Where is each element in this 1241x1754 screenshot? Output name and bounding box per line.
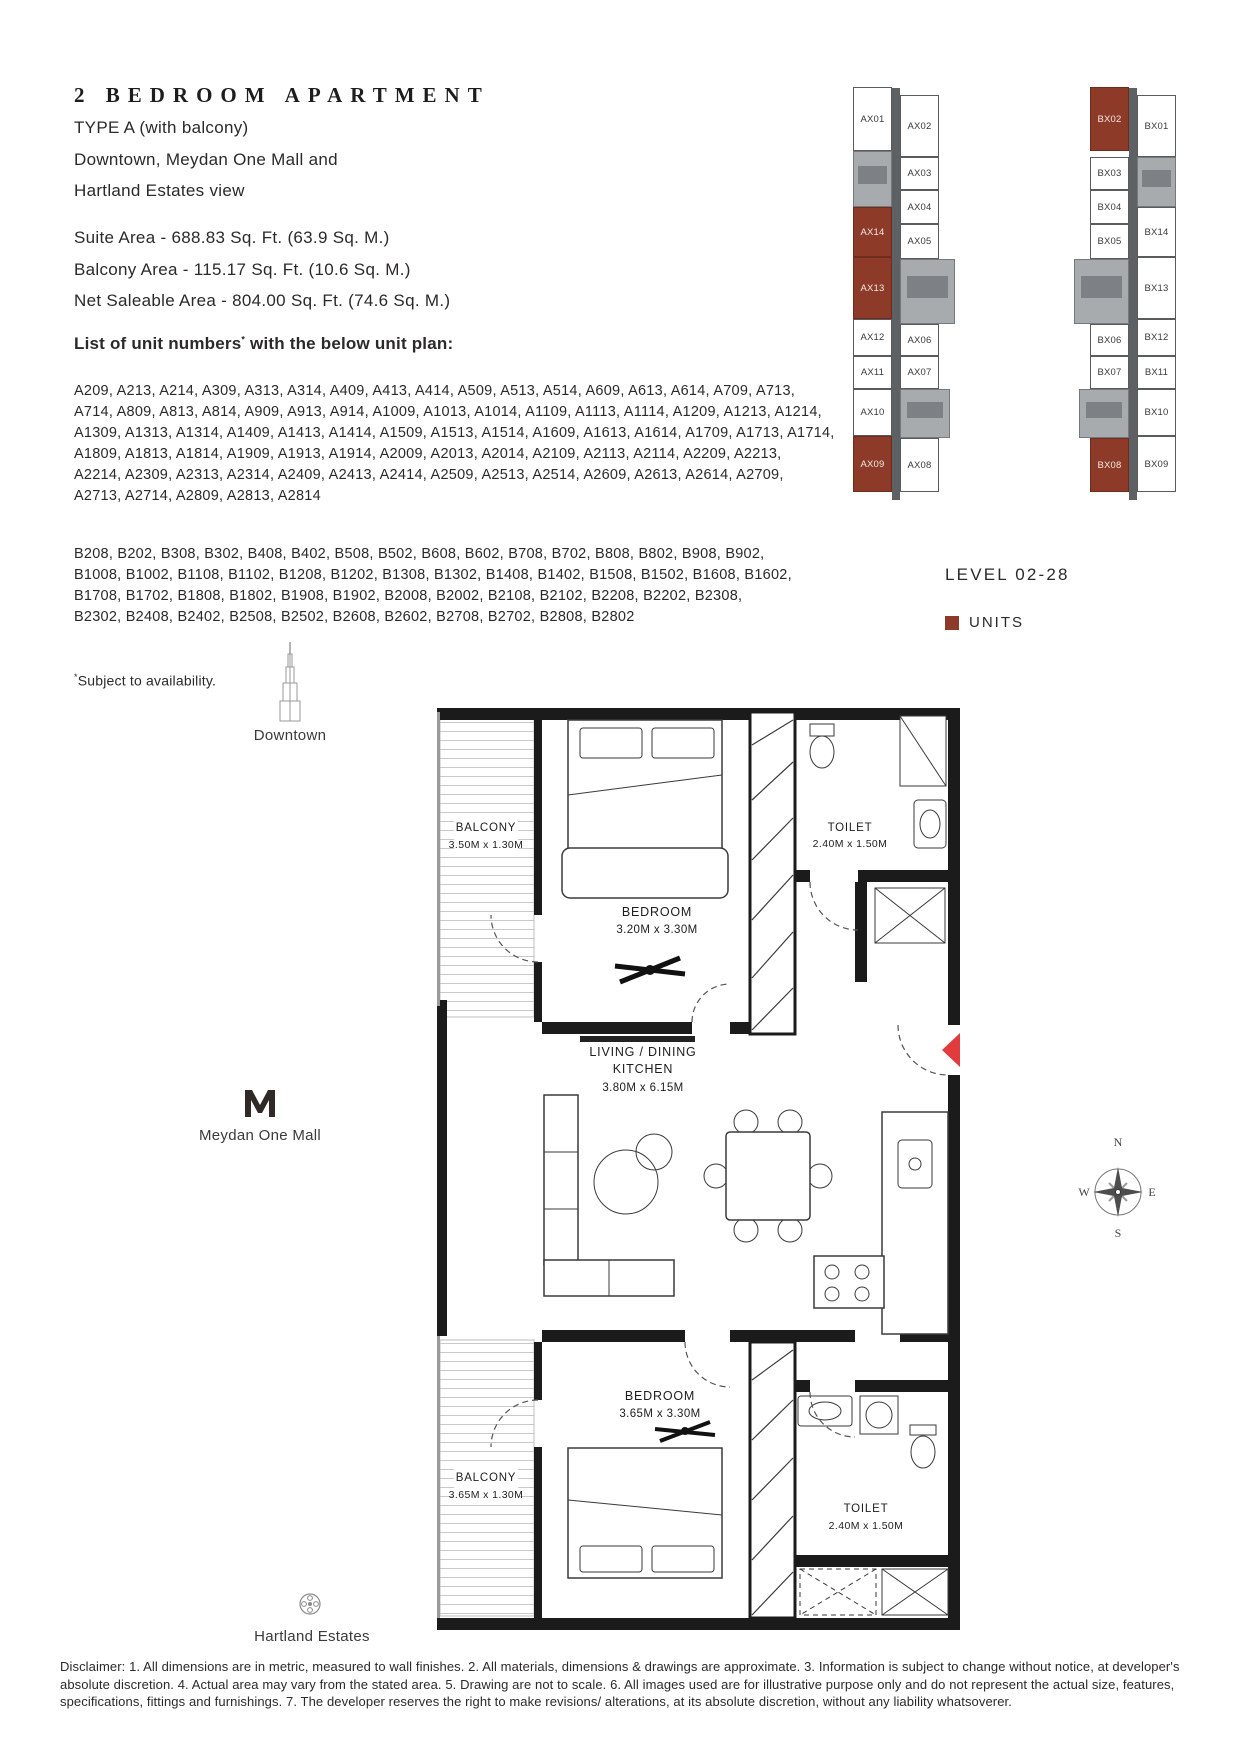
net-area: Net Saleable Area - 804.00 Sq. Ft. (74.6… <box>74 285 450 317</box>
keyplan-unit: BX14 <box>1137 207 1176 257</box>
core-detail <box>907 402 944 418</box>
unit-color-swatch <box>945 616 959 630</box>
room-label-toilet-bottom: TOILET <box>844 1503 889 1515</box>
availability-note-text: Subject to availability. <box>78 673 216 689</box>
room-label-toilet-top: TOILET <box>828 822 873 834</box>
keyplan-unit: BX06 <box>1090 324 1129 356</box>
unit-list-a-line: A1809, A1813, A1814, A1909, A1913, A1914… <box>74 444 835 465</box>
compass-n: N <box>1114 1135 1123 1149</box>
balcony-top-floor <box>440 713 534 1017</box>
unit-list-heading-text: List of unit numbers <box>74 334 241 353</box>
meydan-one-mall-logo <box>242 1086 278 1120</box>
utility-box-dashed <box>800 1569 876 1615</box>
keyplan-unit: AX06 <box>900 324 939 356</box>
page-title: 2 BEDROOM APARTMENT <box>74 83 490 108</box>
unit-list-b-line: B1008, B1002, B1108, B1102, B1208, B1202… <box>74 565 792 586</box>
keyplan-unit: BX10 <box>1137 389 1176 436</box>
core-detail <box>1086 402 1123 418</box>
room-label-bedroom-bottom: BEDROOM <box>625 1389 695 1403</box>
room-dims-toilet-top: 2.40M x 1.50M <box>813 838 888 850</box>
keyplan-unit: BX09 <box>1137 436 1176 492</box>
unit-list-a-line: A2214, A2309, A2313, A2314, A2409, A2413… <box>74 465 835 486</box>
keyplan-unit: BX05 <box>1090 224 1129 259</box>
landmark-downtown-label: Downtown <box>230 727 350 744</box>
units-legend-label: UNITS <box>969 614 1024 631</box>
unit-list-heading: List of unit numbers* with the below uni… <box>74 334 453 354</box>
availability-note: *Subject to availability. <box>74 672 216 689</box>
utility-box <box>882 1569 948 1615</box>
keyplan-unit: BX13 <box>1137 257 1176 319</box>
unit-list-a: A209, A213, A214, A309, A313, A314, A409… <box>74 381 835 507</box>
level-label: LEVEL 02-28 <box>945 565 1070 585</box>
keyplan-unit: BX03 <box>1090 157 1129 190</box>
core-detail <box>907 276 947 297</box>
unit-list-a-line: A2713, A2714, A2809, A2813, A2814 <box>74 486 835 507</box>
keyplan-unit-highlight: BX02 <box>1090 87 1129 151</box>
corridor-spine <box>892 88 900 500</box>
unit-list-b-line: B2302, B2408, B2402, B2508, B2502, B2608… <box>74 607 792 628</box>
keyplan-unit: BX01 <box>1137 95 1176 157</box>
keyplan-unit: BX04 <box>1090 190 1129 224</box>
keyplan-unit-highlight: AX09 <box>853 436 892 492</box>
room-dims-balcony-bottom: 3.65M x 1.30M <box>449 1489 524 1501</box>
keyplan-unit-highlight: AX14 <box>853 207 892 257</box>
landmark-hartland-label: Hartland Estates <box>247 1628 377 1645</box>
tv-console-icon <box>580 1036 695 1042</box>
keyplan-core <box>900 389 950 438</box>
units-legend: UNITS <box>945 614 1024 631</box>
room-label-bedroom-top: BEDROOM <box>622 905 692 919</box>
coffee-table-icon <box>594 1134 672 1214</box>
keyplan-unit: AX08 <box>900 438 939 492</box>
keyplan-unit: BX07 <box>1090 356 1129 389</box>
core-detail <box>1081 276 1121 297</box>
corridor-spine <box>1129 88 1137 500</box>
ceiling-fan-icon <box>615 958 685 982</box>
compass-rose-icon: N W E S <box>1072 1132 1164 1242</box>
keyplan-unit: AX03 <box>900 157 939 190</box>
room-label-balcony-bottom: BALCONY <box>456 1472 517 1484</box>
floor-plan: BEDROOM 3.20M x 3.30M BALCONY 3.50M x 1.… <box>430 700 970 1640</box>
hartland-estates-icon <box>296 1590 324 1618</box>
compass-s: S <box>1115 1226 1122 1240</box>
type-line: TYPE A (with balcony) <box>74 118 248 138</box>
dining-table-icon <box>704 1110 832 1242</box>
keyplan-unit-highlight: AX13 <box>853 257 892 319</box>
keyplan-unit: AX04 <box>900 190 939 224</box>
keyplan-core <box>1074 259 1129 324</box>
bed-icon-top <box>562 720 728 898</box>
core-detail <box>858 166 886 184</box>
room-label-balcony-top: BALCONY <box>456 822 517 834</box>
area-block: Suite Area - 688.83 Sq. Ft. (63.9 Sq. M.… <box>74 222 450 317</box>
keyplan-unit: AX12 <box>853 319 892 356</box>
keyplan-tower-b: BX02 BX03 BX04 BX05 BX06 BX07 BX08 BX01 … <box>1090 80 1176 495</box>
keyplan-unit: AX11 <box>853 356 892 389</box>
keyplan-core <box>853 151 892 207</box>
keyplan-unit: AX05 <box>900 224 939 259</box>
unit-list-heading-suffix: with the below unit plan: <box>245 334 453 353</box>
entry-closet <box>875 888 945 943</box>
core-detail <box>1142 170 1170 186</box>
keyplan-unit: BX11 <box>1137 356 1176 389</box>
keyplan-unit: BX12 <box>1137 319 1176 356</box>
room-dims-bedroom-bottom: 3.65M x 3.30M <box>619 1408 700 1420</box>
brochure-page: 2 BEDROOM APARTMENT TYPE A (with balcony… <box>0 0 1241 1754</box>
ceiling-fan-icon <box>655 1422 715 1441</box>
room-dims-balcony-top: 3.50M x 1.30M <box>449 839 524 851</box>
bed-icon-bottom <box>568 1448 722 1578</box>
disclaimer-text: Disclaimer: 1. All dimensions are in met… <box>60 1658 1182 1711</box>
room-label-living-1: LIVING / DINING <box>589 1045 696 1059</box>
unit-list-b-line: B1708, B1702, B1808, B1802, B1908, B1902… <box>74 586 792 607</box>
keyplan-core <box>900 259 955 324</box>
room-dims-living: 3.80M x 6.15M <box>602 1082 683 1094</box>
suite-area: Suite Area - 688.83 Sq. Ft. (63.9 Sq. M.… <box>74 222 450 254</box>
room-label-living-2: KITCHEN <box>613 1062 673 1076</box>
keyplan-core <box>1079 389 1129 438</box>
compass-w: W <box>1078 1185 1090 1199</box>
room-dims-bedroom-top: 3.20M x 3.30M <box>616 924 697 936</box>
landmark-meydan-label: Meydan One Mall <box>195 1127 325 1144</box>
wardrobe-top <box>750 712 795 1034</box>
burj-khalifa-icon <box>276 642 304 722</box>
compass-e: E <box>1148 1185 1155 1199</box>
unit-list-a-line: A1309, A1313, A1314, A1409, A1413, A1414… <box>74 423 835 444</box>
unit-list-a-line: A714, A809, A813, A814, A909, A913, A914… <box>74 402 835 423</box>
keyplan-unit: AX10 <box>853 389 892 436</box>
entry-arrow-icon <box>942 1033 960 1067</box>
keyplan-unit-highlight: BX08 <box>1090 438 1129 492</box>
keyplan-unit: AX02 <box>900 95 939 157</box>
unit-list-b: B208, B202, B308, B302, B408, B402, B508… <box>74 544 792 628</box>
view-line-2: Hartland Estates view <box>74 181 245 201</box>
view-line-1: Downtown, Meydan One Mall and <box>74 150 338 170</box>
keyplan-unit: AX01 <box>853 87 892 151</box>
keyplan-unit: AX07 <box>900 356 939 389</box>
room-dims-toilet-bottom: 2.40M x 1.50M <box>829 1520 904 1532</box>
keyplan-tower-a: AX01 AX14 AX13 AX12 AX11 AX10 AX09 AX02 … <box>853 80 939 495</box>
unit-list-a-line: A209, A213, A214, A309, A313, A314, A409… <box>74 381 835 402</box>
balcony-area: Balcony Area - 115.17 Sq. Ft. (10.6 Sq. … <box>74 254 450 286</box>
unit-list-b-line: B208, B202, B308, B302, B408, B402, B508… <box>74 544 792 565</box>
toilet-bottom-fixtures <box>798 1396 936 1468</box>
keyplan-core <box>1137 157 1176 207</box>
